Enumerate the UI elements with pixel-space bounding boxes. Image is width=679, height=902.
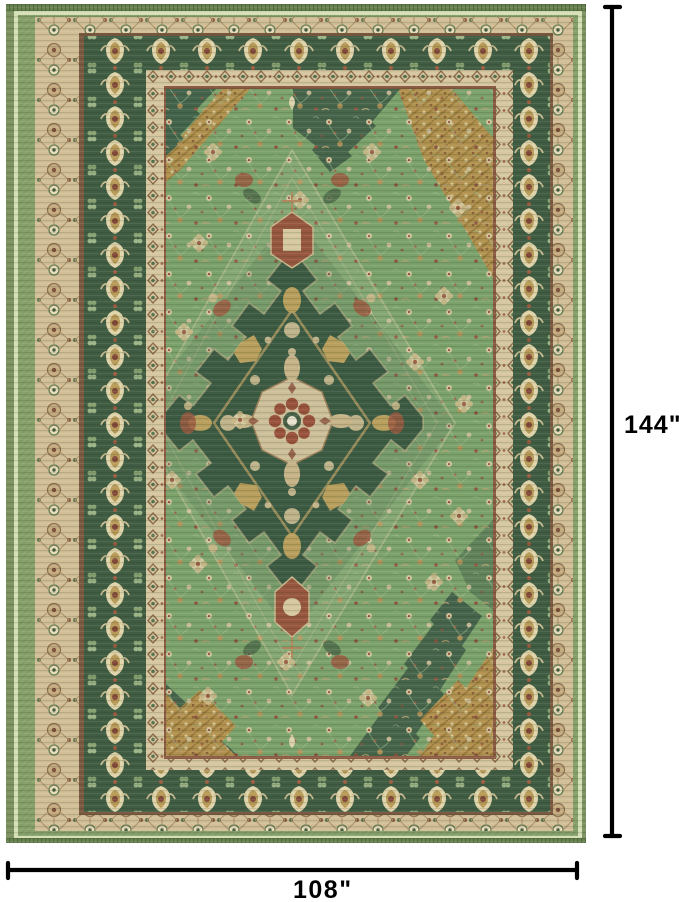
svg-text:108": 108" — [293, 876, 353, 902]
svg-text:144": 144" — [624, 411, 679, 439]
